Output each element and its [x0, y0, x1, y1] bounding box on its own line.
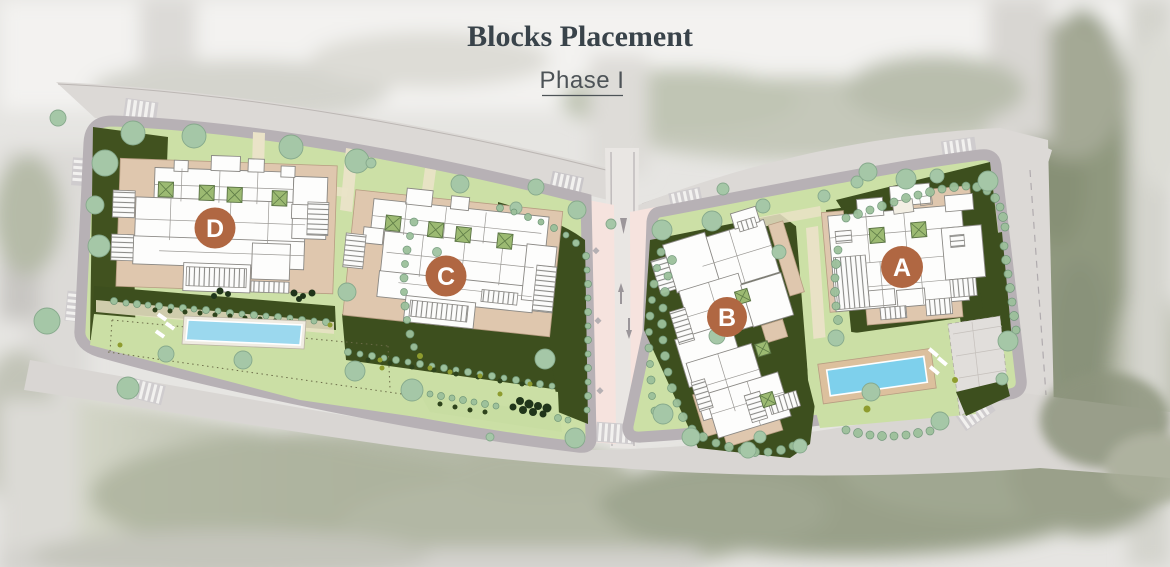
svg-text:D: D: [206, 215, 224, 243]
svg-text:A: A: [893, 254, 911, 282]
svg-text:Blocks Placement: Blocks Placement: [467, 20, 693, 53]
svg-text:C: C: [437, 263, 455, 291]
svg-text:B: B: [718, 304, 736, 332]
svg-text:Phase I: Phase I: [540, 67, 625, 94]
